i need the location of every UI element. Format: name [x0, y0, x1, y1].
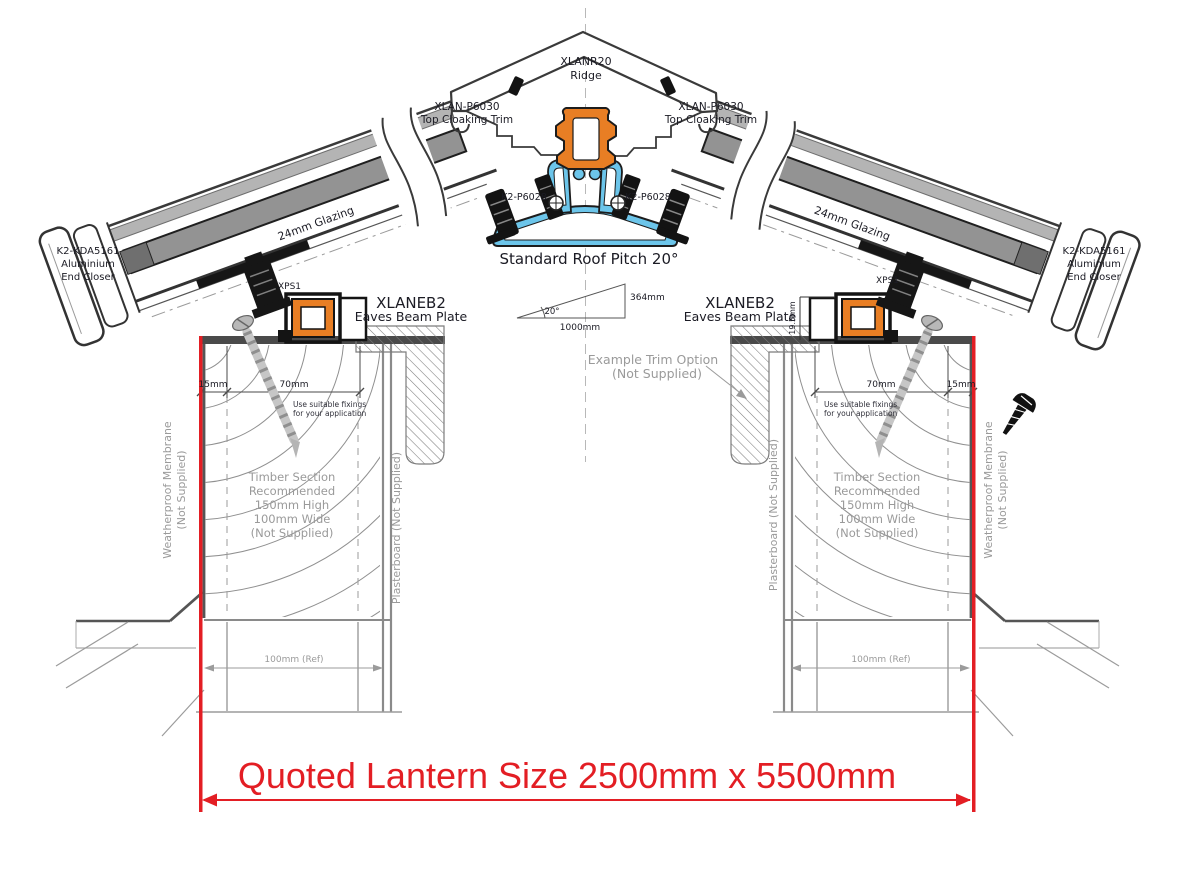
roof-pitch-label: Standard Roof Pitch 20°: [499, 250, 678, 268]
cloaking-right-name-label: Top Cloaking Trim: [664, 114, 757, 126]
right-membrane-label-line2: (Not Supplied): [996, 450, 1009, 529]
quote-line-right: [972, 336, 976, 812]
upstand-height-label: 19.5mm: [788, 301, 797, 335]
left-offset-dim-label: 15mm: [199, 380, 228, 390]
membrane-wrap-diagonal: [170, 592, 203, 621]
membrane-wrap-diagonal: [972, 592, 1005, 621]
left-fixing-note-line2: for your application: [293, 409, 367, 418]
ridge-beam-curl: [590, 169, 601, 180]
right-eaves-upstand-frame: [810, 298, 836, 340]
left-eaves-foot: [278, 330, 292, 342]
trim-option-line1: Example Trim Option: [588, 352, 718, 367]
right-timber-note-line3: 150mm High: [840, 498, 914, 512]
ridge-fixing-left-label: K2-P6028: [501, 192, 547, 203]
ridge-code-label: XLANR20: [560, 55, 611, 68]
pitch-rise-label: 364mm: [630, 293, 665, 303]
quoted-lantern-size-title: Quoted Lantern Size 2500mm x 5500mm: [238, 755, 896, 796]
right-offset-dim-label: 15mm: [947, 380, 976, 390]
left-timber-note-line1: Timber Section: [248, 470, 336, 484]
screw-tip: [290, 438, 300, 458]
left-membrane-label-line1: Weatherproof Membrane: [161, 421, 174, 559]
right-plasterboard-label: Plasterboard (Not Supplied): [767, 439, 780, 591]
arrowhead-right: [956, 794, 971, 807]
end-closer-left-line2: Aluminium: [61, 259, 115, 270]
right-membrane-label-line1: Weatherproof Membrane: [982, 421, 995, 559]
end-closer-right-line3: End Closer: [1067, 272, 1121, 283]
pitch-angle-label: 20°: [544, 307, 559, 317]
left-trim-hatch: [356, 326, 444, 464]
break-mark: [56, 622, 128, 666]
ridge-beam-curl: [574, 169, 585, 180]
end-closer-right-line2: Aluminium: [1067, 259, 1121, 270]
loose-screw-icon: [995, 390, 1039, 441]
end-closer-right-line1: K2-KDA5161: [1063, 246, 1126, 257]
end-closer-left-line1: K2-KDA5161: [57, 246, 120, 257]
end-closer-left-line3: End Closer: [61, 272, 115, 283]
xps1-left-label: XPS1: [278, 282, 301, 292]
left-width-dim-label: 70mm: [280, 380, 309, 390]
technical-drawing-canvas: 24mm Glazing 24mm Glazing: [0, 0, 1184, 872]
right-timber-note-line4: 100mm Wide: [839, 512, 916, 526]
roof-lantern-section-drawing: 24mm Glazing 24mm Glazing: [0, 0, 1184, 872]
break-mark: [162, 690, 204, 736]
right-base-ref-label: 100mm (Ref): [851, 655, 910, 665]
screw-tip: [875, 438, 885, 458]
pitch-run-label: 1000mm: [560, 323, 600, 333]
break-mark: [1037, 644, 1109, 688]
pitch-triangle: [517, 284, 625, 318]
ridge-profile-cavity: [573, 118, 599, 160]
right-timber-note-line1: Timber Section: [833, 470, 921, 484]
cloaking-left-code-label: XLAN-P6030: [434, 101, 499, 113]
break-mark: [1047, 622, 1119, 666]
left-eaves-beam-assembly: [278, 294, 366, 342]
right-timber-note-line5: (Not Supplied): [836, 526, 919, 540]
right-wall-base-dimension: [791, 665, 970, 672]
trim-option-line2: (Not Supplied): [612, 366, 702, 381]
eaves-left-name-label: Eaves Beam Plate: [355, 309, 468, 324]
eaves-right-name-label: Eaves Beam Plate: [684, 309, 797, 324]
break-mark: [66, 644, 138, 688]
right-width-dim-label: 70mm: [867, 380, 896, 390]
right-fixing-note-line1: Use suitable fixings: [824, 400, 897, 409]
ridge-name-label: Ridge: [570, 69, 602, 82]
cloaking-left-name-label: Top Cloaking Trim: [420, 114, 513, 126]
left-timber-note-line2: Recommended: [249, 484, 335, 498]
arrowhead-left: [202, 794, 217, 807]
ridge-beam-plate-cavity: [503, 213, 667, 241]
left-fixing-note-line1: Use suitable fixings: [293, 400, 366, 409]
xps1-right-label: XPS1: [876, 276, 899, 286]
left-plasterboard-label: Plasterboard (Not Supplied): [390, 452, 403, 604]
left-wall-base-dimension: [204, 665, 383, 672]
left-eaves-beam-cavity: [301, 307, 325, 329]
left-timber-note-line5: (Not Supplied): [251, 526, 334, 540]
quote-line-left: [199, 336, 203, 812]
cloaking-right-code-label: XLAN-P6030: [678, 101, 743, 113]
left-timber-note-line4: 100mm Wide: [254, 512, 331, 526]
left-timber-note-line3: 150mm High: [255, 498, 329, 512]
ridge-fixing-right-label: K2-P6028: [625, 192, 671, 203]
right-timber-note-line2: Recommended: [834, 484, 920, 498]
right-eaves-beam-cavity: [851, 307, 875, 329]
left-base-ref-label: 100mm (Ref): [264, 655, 323, 665]
break-mark: [971, 690, 1013, 736]
right-fixing-note-line2: for your application: [824, 409, 898, 418]
right-eaves-foot: [884, 330, 898, 342]
left-membrane-label-line2: (Not Supplied): [175, 450, 188, 529]
